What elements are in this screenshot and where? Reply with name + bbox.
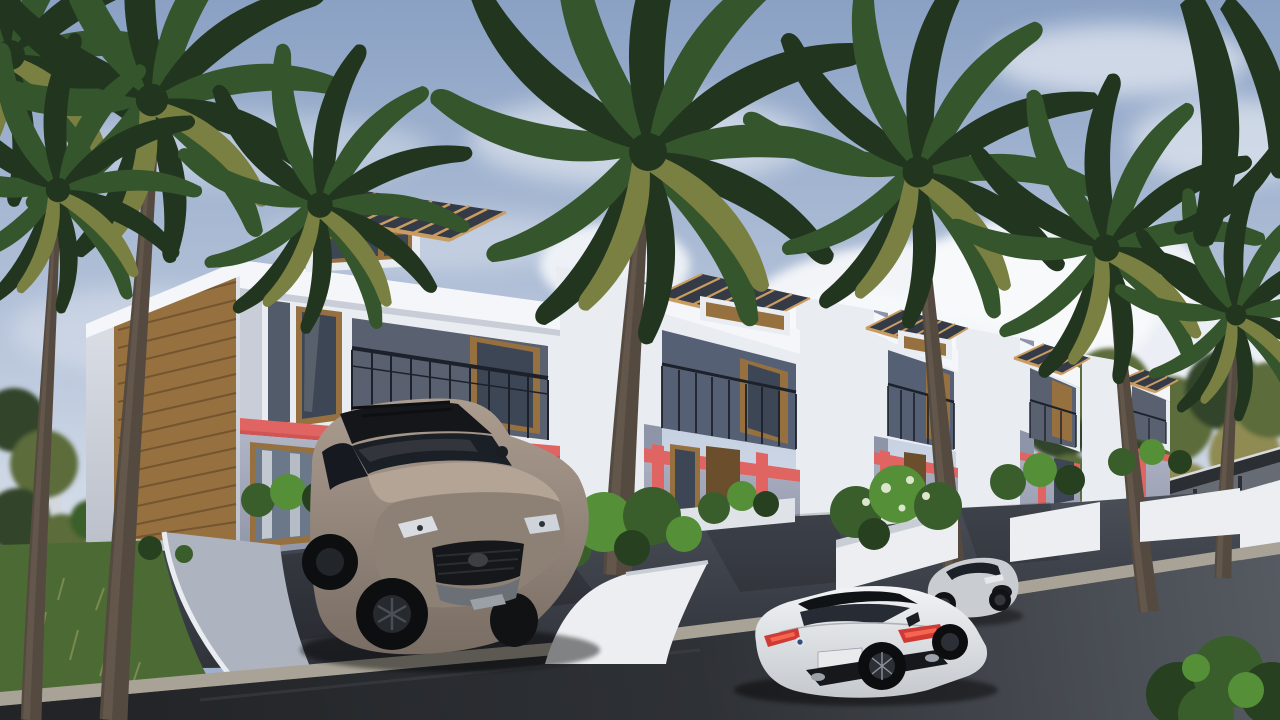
exhaust-tip (811, 673, 825, 681)
suv-rim (316, 548, 344, 576)
architectural-render-scene (0, 0, 1280, 720)
scene-canvas (0, 0, 1280, 720)
exhaust-tip (925, 654, 939, 662)
headlight-pupil (539, 521, 545, 527)
suv-mirror (496, 446, 508, 458)
sedan-rim (941, 633, 959, 651)
sedan-roundel-center (797, 639, 802, 644)
coupe-rim (995, 595, 1006, 606)
corner-glazing (268, 300, 290, 426)
headlight-pupil (417, 525, 423, 531)
suv-emblem (468, 553, 488, 567)
townhouse-unit-2 (556, 266, 810, 532)
balcony-door-glass (748, 364, 780, 438)
